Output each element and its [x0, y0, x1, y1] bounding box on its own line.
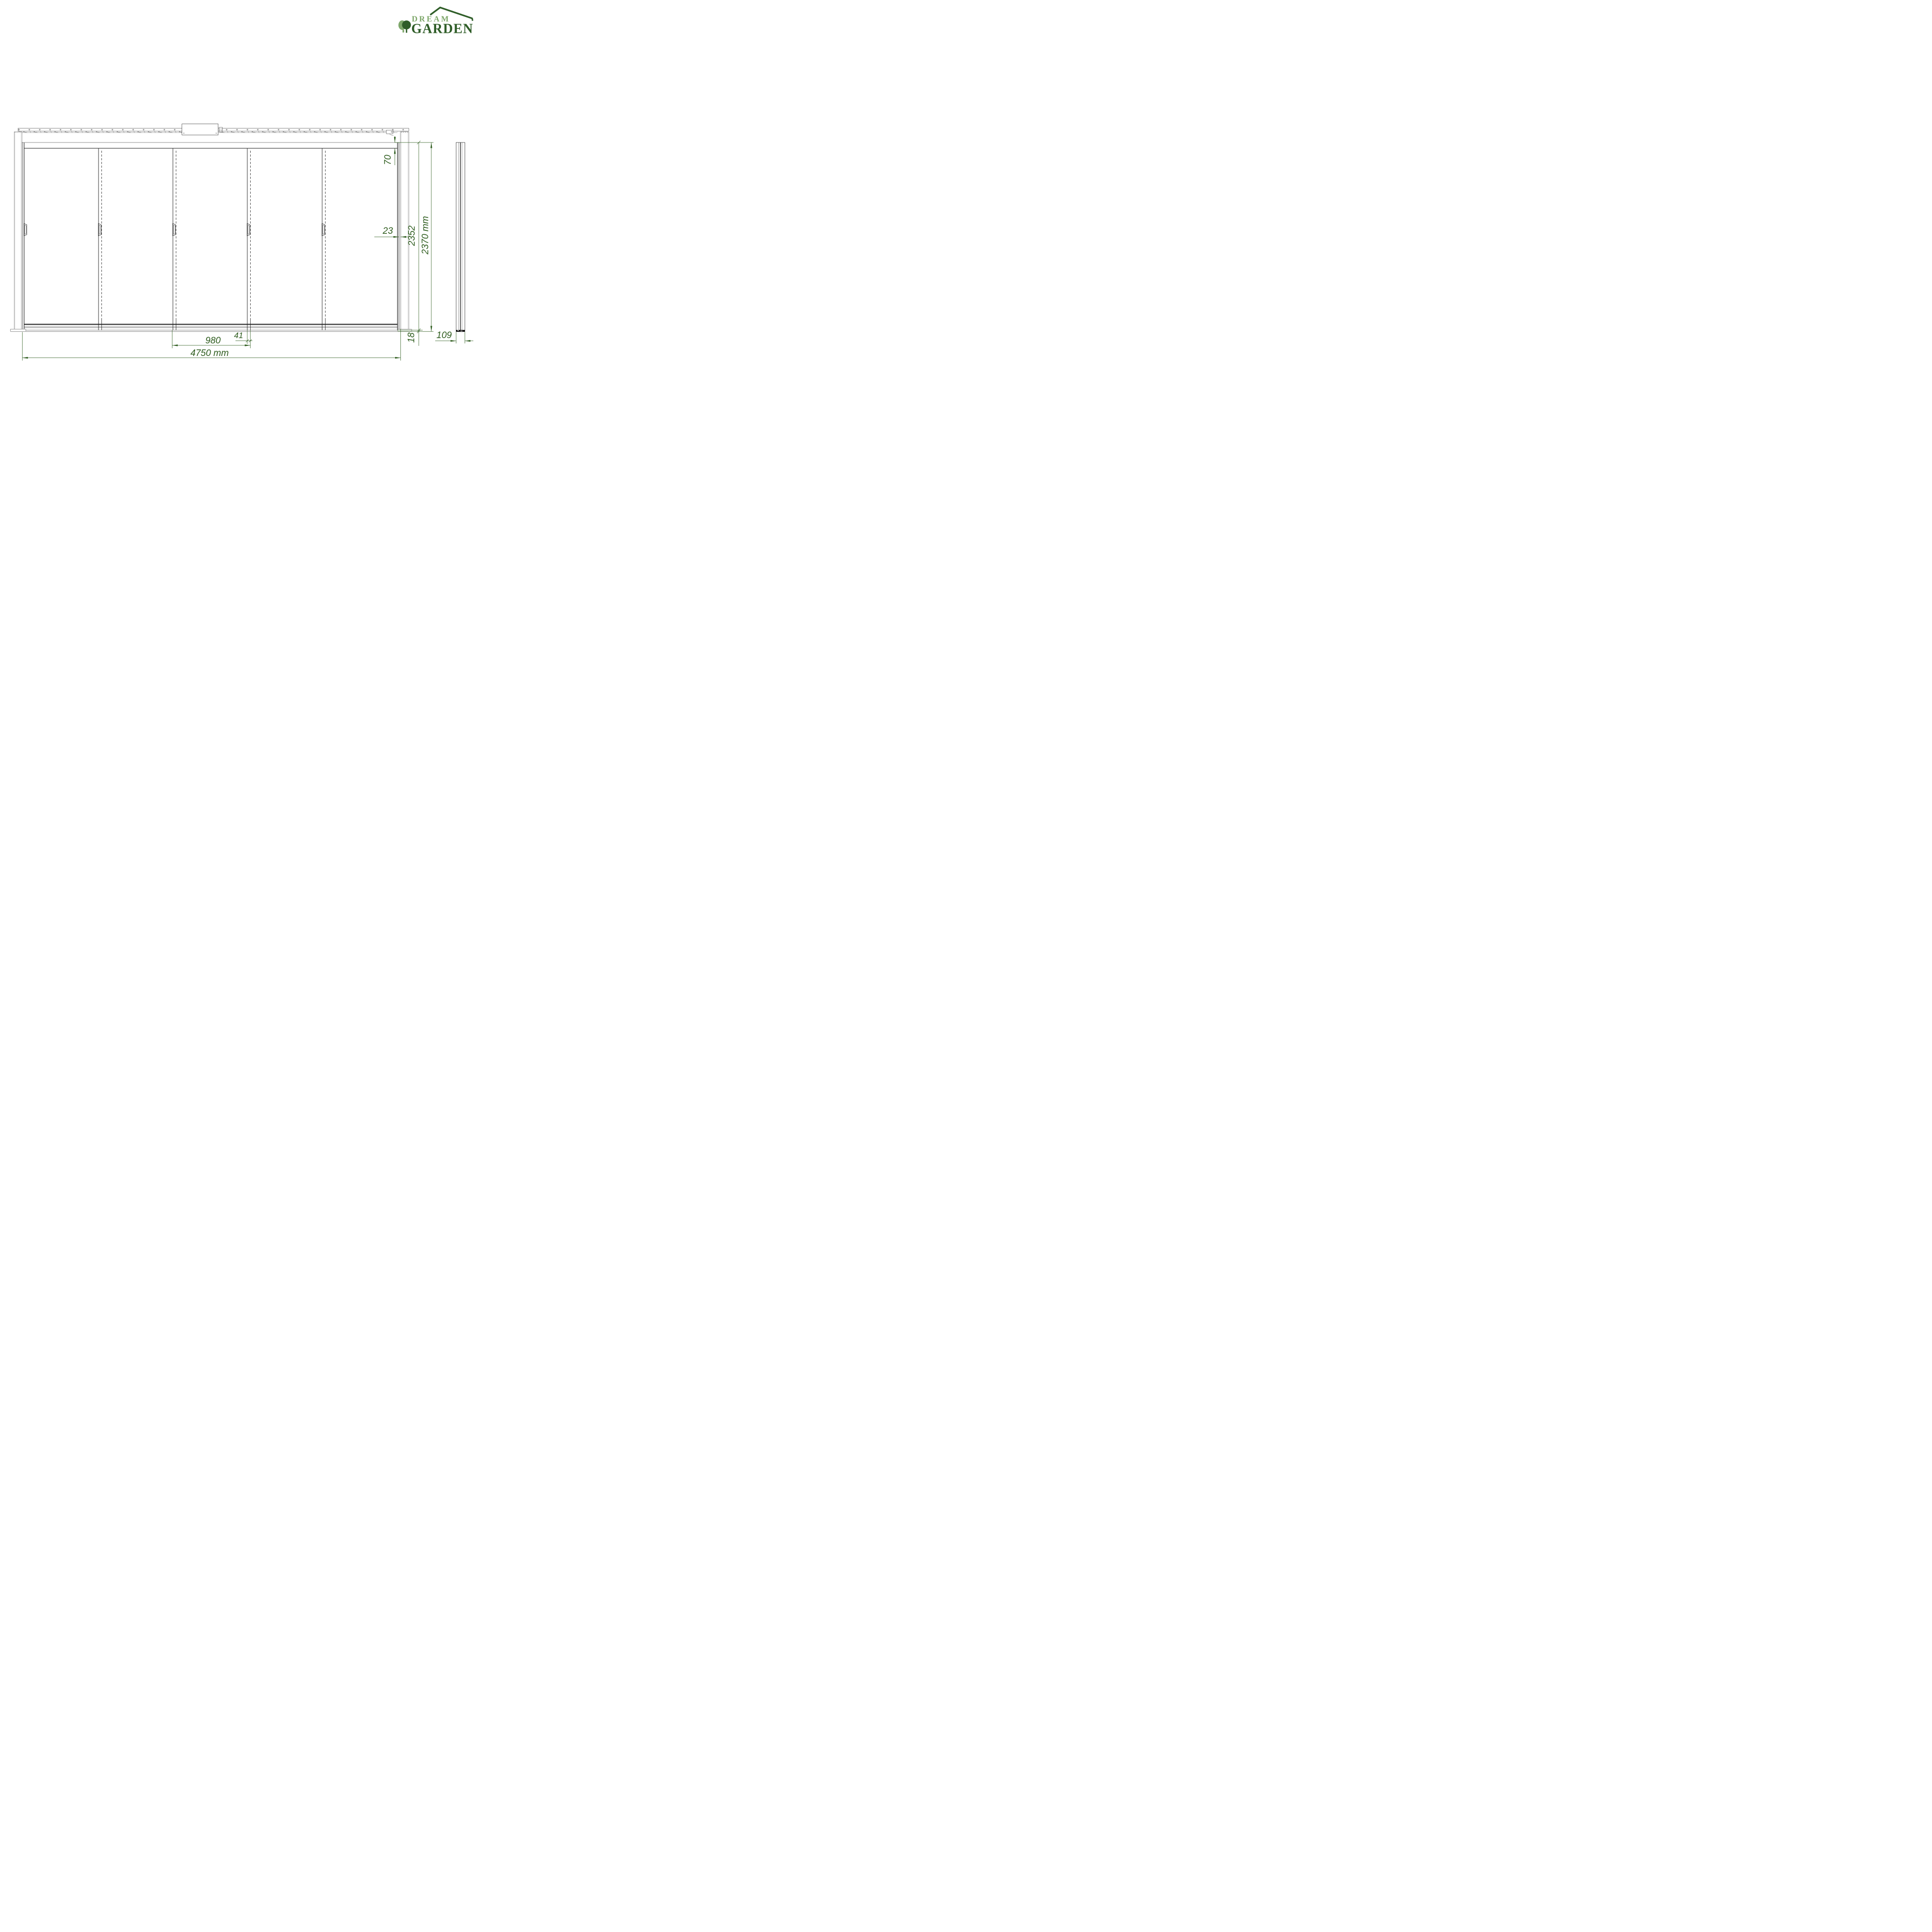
- svg-text:4750 mm: 4750 mm: [190, 348, 228, 358]
- side-section-view: [456, 142, 465, 332]
- dim-inner-height: 2352: [407, 142, 421, 346]
- svg-text:23: 23: [382, 226, 393, 236]
- hidden-panel-edges: [102, 151, 326, 330]
- logo: DREAM GARDEN: [398, 8, 473, 37]
- dim-section-depth: 109: [435, 330, 473, 343]
- bottom-track: [22, 324, 399, 331]
- dim-top-profile-height: 70: [383, 136, 396, 165]
- brand-name-bottom: GARDEN: [412, 22, 474, 37]
- svg-text:41: 41: [234, 331, 243, 340]
- track-end-plate: [386, 130, 394, 135]
- side-bottom-profile: [456, 330, 465, 332]
- svg-text:109: 109: [437, 330, 452, 341]
- dim-panel-overlap: 41: [234, 330, 253, 344]
- door-frame: [22, 142, 399, 330]
- svg-text:980: 980: [205, 336, 221, 346]
- logo-trees-icon: [398, 20, 411, 33]
- panel-dividers: [24, 143, 398, 330]
- technical-drawing-page: DREAM GARDEN: [0, 0, 483, 483]
- left-post: [14, 132, 22, 329]
- front-elevation-view: [10, 124, 412, 332]
- left-foot-plate: [10, 329, 26, 331]
- drawing-canvas: DREAM GARDEN: [0, 0, 483, 483]
- logo-roof-end: [472, 18, 473, 21]
- svg-text:2352: 2352: [407, 225, 417, 246]
- motor-box: [182, 124, 218, 135]
- motor-bracket: [219, 128, 222, 132]
- svg-text:70: 70: [383, 155, 393, 165]
- dim-total-height: 2370 mm: [421, 142, 432, 331]
- dim-bottom-profile-height: 18: [398, 330, 433, 343]
- door-handles: [24, 224, 325, 236]
- svg-text:2370 mm: 2370 mm: [421, 216, 431, 255]
- svg-text:18: 18: [407, 332, 417, 343]
